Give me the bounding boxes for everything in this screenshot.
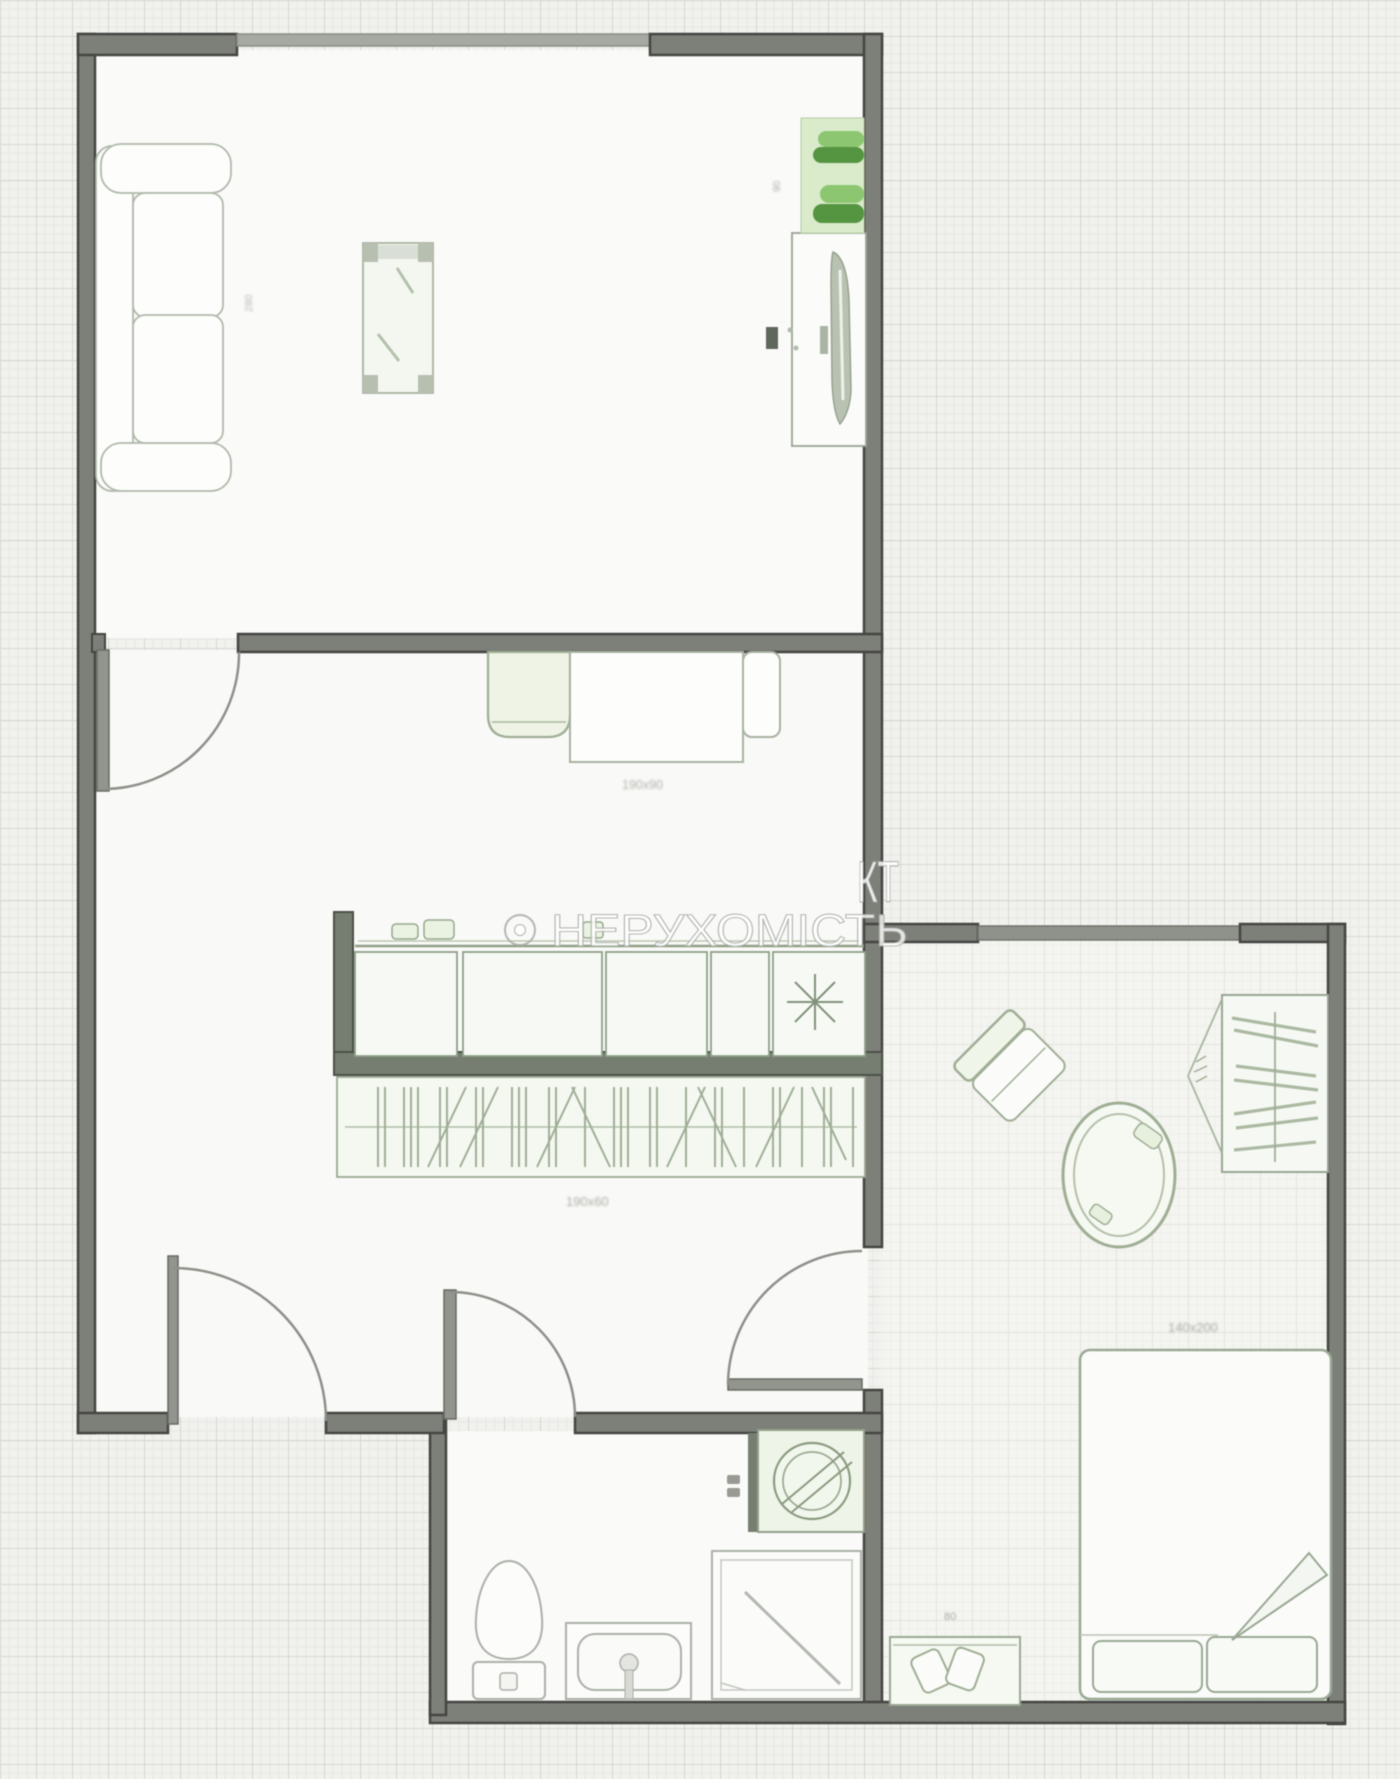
svg-text:140x200: 140x200 <box>1168 1320 1218 1335</box>
svg-text:80: 80 <box>944 1611 956 1623</box>
svg-text:90: 90 <box>772 180 783 192</box>
svg-text:280: 280 <box>243 294 255 312</box>
svg-text:НЕРУХОМІСТЬ: НЕРУХОМІСТЬ <box>551 905 908 956</box>
svg-text:190x60: 190x60 <box>566 1194 609 1209</box>
svg-text:190x90: 190x90 <box>622 778 663 792</box>
